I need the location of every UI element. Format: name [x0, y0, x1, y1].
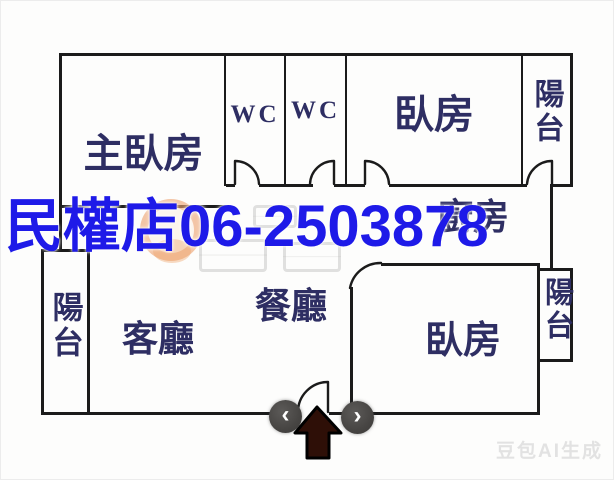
entrance-arrow-icon [1, 1, 614, 480]
floorplan-image: 主臥房 WC WC 臥房 陽台 廚房 陽台 客廳 餐廳 臥房 陽台 民權店06-… [0, 0, 614, 480]
